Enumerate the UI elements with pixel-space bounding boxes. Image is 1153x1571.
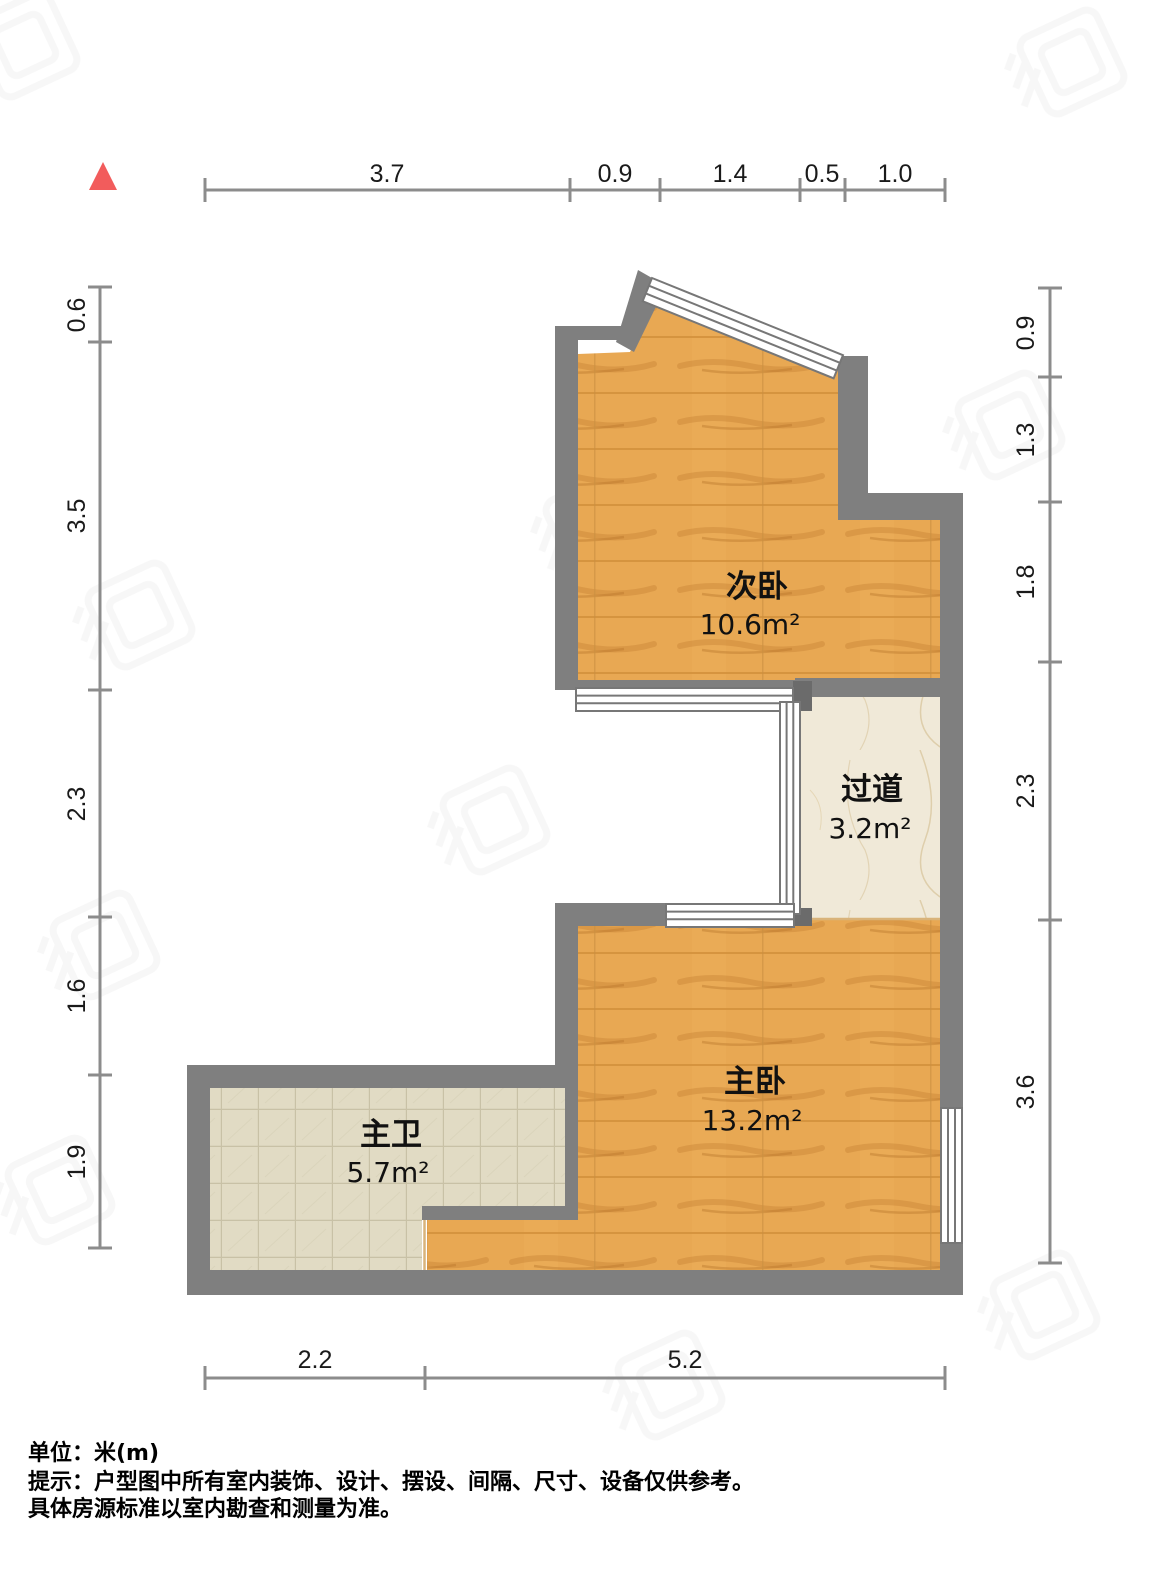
window-bedroom2-south (576, 688, 793, 711)
wall-master-left (555, 903, 578, 1088)
dim-right-1: 1.3 (1012, 423, 1040, 458)
dim-left-0: 0.6 (63, 298, 91, 333)
room-hallway-name: 过道 (841, 772, 903, 808)
wall-bathroom-south-stub (422, 1206, 578, 1220)
dim-right-2: 1.8 (1012, 565, 1040, 600)
dim-top-3: 0.5 (805, 160, 840, 188)
room-master-bedroom-area: 13.2m² (702, 1104, 803, 1137)
room-master-bathroom-name: 主卫 (360, 1117, 422, 1153)
wall-bottom-outer (187, 1270, 963, 1295)
dim-bottom-1: 5.2 (668, 1346, 703, 1374)
dim-right-0: 0.9 (1012, 316, 1040, 351)
dim-left-1: 3.5 (63, 499, 91, 534)
room-secondary-bedroom-name: 次卧 (726, 569, 788, 605)
dim-right-3: 2.3 (1012, 774, 1040, 809)
wall-right-upper (838, 356, 868, 497)
footer-notice-line2: 具体房源标准以室内勘查和测量为准。 (28, 1496, 402, 1522)
canvas-background (0, 0, 1153, 1571)
dim-top-4: 1.0 (878, 160, 913, 188)
dim-top-1: 0.9 (598, 160, 633, 188)
room-hallway-floor (800, 697, 940, 920)
dim-bottom-0: 2.2 (298, 1346, 333, 1374)
dim-top-2: 1.4 (713, 160, 748, 188)
dim-left-3: 1.6 (63, 979, 91, 1014)
footer-notice-line1: 提示：户型图中所有室内装饰、设计、摆设、间隔、尺寸、设备仅供参考。 (28, 1469, 754, 1495)
dim-left-4: 1.9 (63, 1145, 91, 1180)
dim-left-2: 2.3 (63, 787, 91, 822)
window-master-east (941, 1108, 962, 1243)
room-hallway-area: 3.2m² (828, 812, 911, 845)
dim-right-4: 3.6 (1012, 1075, 1040, 1110)
wall-top-stub (555, 326, 622, 340)
window-master-north (666, 904, 794, 927)
room-master-bedroom-name: 主卧 (724, 1064, 786, 1100)
window-hallway-column (780, 702, 800, 914)
wall-left-outer (187, 1065, 210, 1295)
footer-unit-label: 单位：米(m) (28, 1440, 159, 1466)
wall-left-upper (555, 326, 578, 690)
wall-bathroom-north (187, 1065, 578, 1088)
wall-bathroom-right (565, 1088, 578, 1206)
wall-bedroom2-hallway (795, 678, 940, 697)
floor-plan-svg: 次卧 10.6m² 过道 3.2m² 主卧 13.2m² 主卫 5.7m² 3.… (0, 0, 1153, 1571)
room-secondary-bedroom-area: 10.6m² (700, 608, 801, 641)
dim-top-0: 3.7 (370, 160, 405, 188)
room-master-bathroom-area: 5.7m² (346, 1156, 429, 1189)
